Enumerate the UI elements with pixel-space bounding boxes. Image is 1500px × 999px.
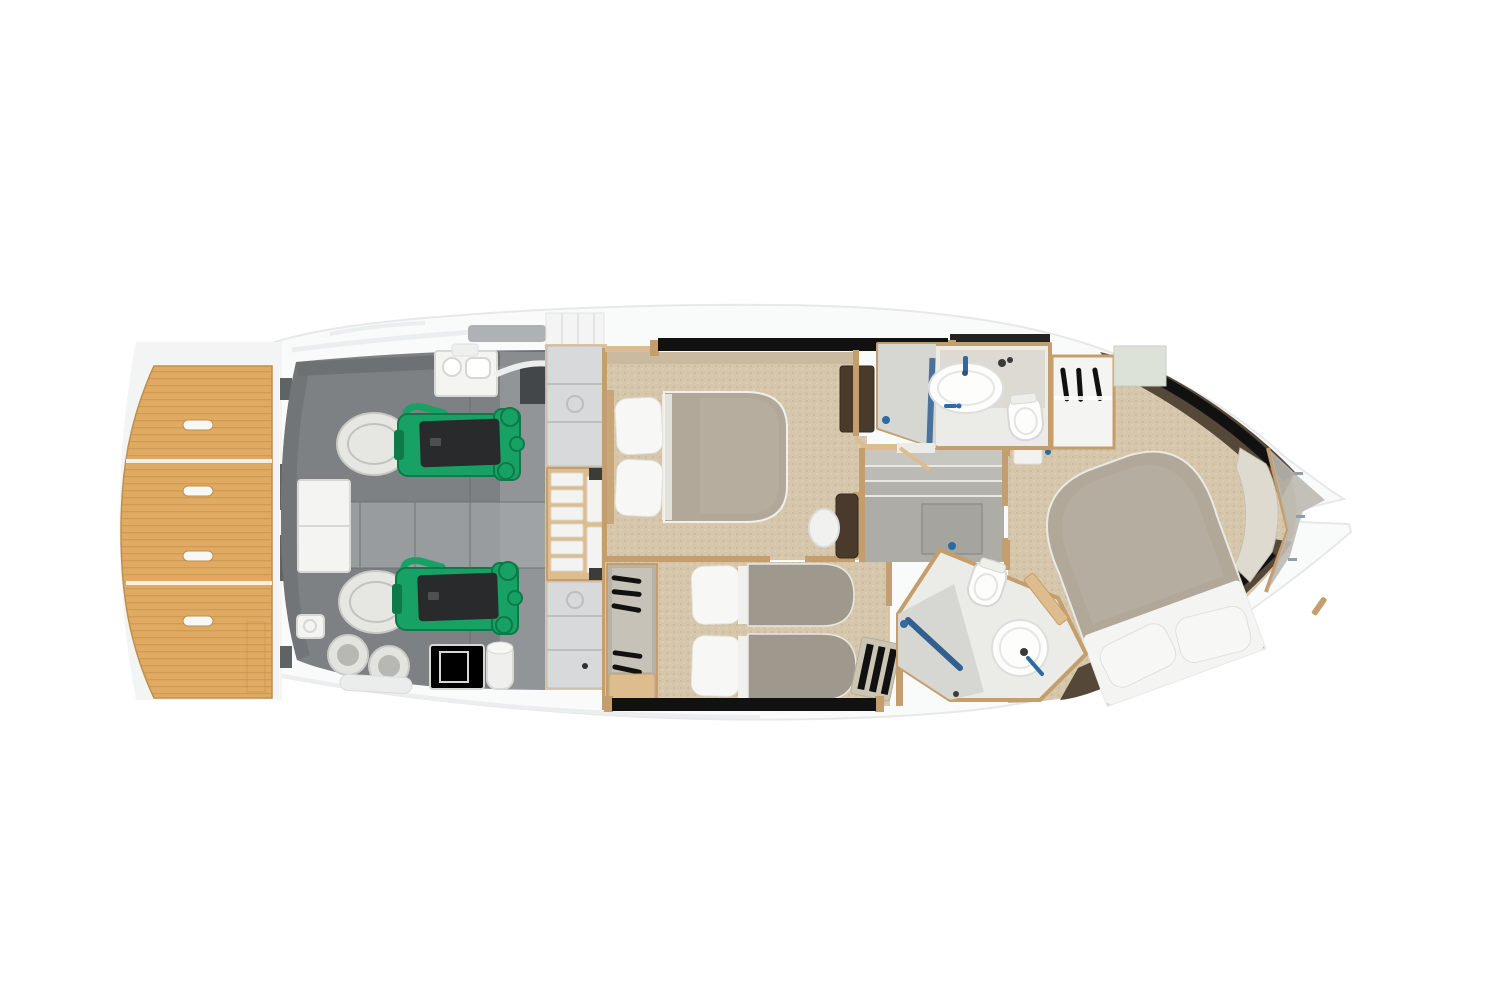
teak-deck: [121, 366, 272, 698]
master-head-sink: [992, 620, 1048, 676]
vip-aft-wall: [605, 556, 770, 562]
vip-duvet-shade: [700, 398, 779, 514]
stair-step: [864, 481, 1004, 496]
companionway-left-wall: [859, 448, 865, 562]
anchor-roller: [1311, 596, 1327, 616]
equipment-box: [430, 645, 484, 689]
vip-headboard: [607, 390, 614, 524]
drain-dot: [953, 691, 959, 697]
transom-block: [280, 646, 292, 668]
sage-panel: [1114, 346, 1166, 386]
service-cabinet: [298, 480, 350, 572]
tap-icon: [944, 404, 962, 409]
vip-pillow: [615, 397, 664, 455]
engine-starboard: [392, 561, 522, 634]
twin-fwd-wall: [886, 560, 892, 606]
swim-ladder: [340, 674, 413, 694]
twin-pillow: [691, 565, 741, 625]
shower-control-dot: [900, 620, 908, 628]
twin-cabin: [604, 560, 903, 712]
engine-port: [394, 407, 524, 480]
floor-plan-canvas: [0, 0, 1500, 999]
companion-steps: [547, 468, 605, 580]
electrical-box: [520, 366, 546, 404]
shower-head-icon: [1007, 357, 1013, 363]
twin-wardrobe: [607, 564, 657, 702]
wardrobe-bench: [609, 674, 655, 700]
companionway-right-wall: [1002, 538, 1008, 562]
twin-pillow: [691, 635, 741, 697]
plank-gap: [126, 581, 272, 585]
platform-handle: [183, 486, 213, 496]
day-head-toilet: [1006, 392, 1045, 441]
hull-window-strip-twin: [612, 698, 876, 711]
drain-dot: [882, 416, 890, 424]
twin-blanket: [748, 634, 856, 700]
deck-step-block: [468, 325, 546, 342]
swim-platform: [121, 366, 292, 698]
water-heater: [328, 635, 368, 675]
vent-grille: [452, 344, 478, 356]
window-post: [875, 696, 884, 712]
vip-top-wall: [605, 346, 657, 352]
platform-handle: [183, 616, 213, 626]
sink-unit: [435, 351, 497, 396]
faucet-dot: [962, 370, 968, 376]
drain-dot: [1020, 648, 1028, 656]
plank-gap: [126, 459, 272, 463]
accumulator-tank: [487, 642, 513, 689]
stair-step: [864, 466, 1004, 481]
hatch-pull-dot: [948, 542, 956, 550]
locker-bottom: [547, 582, 603, 688]
wardrobe-rail: [1054, 396, 1112, 400]
vanity-stool: [809, 509, 839, 547]
window-post: [604, 696, 613, 712]
bilge-pump: [297, 615, 324, 638]
twin-bed-upper: [691, 564, 854, 626]
bulkhead-lockers: [545, 344, 607, 690]
twin-blanket: [748, 564, 854, 626]
vip-head-shelf: [605, 352, 857, 364]
yacht-floor-plan: [0, 0, 1500, 999]
platform-handle: [183, 420, 213, 430]
twin-bed-lower: [691, 634, 856, 700]
window-post: [650, 340, 659, 356]
vip-right-wall: [853, 350, 859, 436]
vip-sheet: [662, 394, 672, 520]
companionway-right-wall: [1002, 448, 1008, 506]
locker-top: [547, 346, 603, 466]
vip-pillow: [615, 459, 664, 517]
shower-head-icon: [998, 359, 1006, 367]
platform-handle: [183, 551, 213, 561]
